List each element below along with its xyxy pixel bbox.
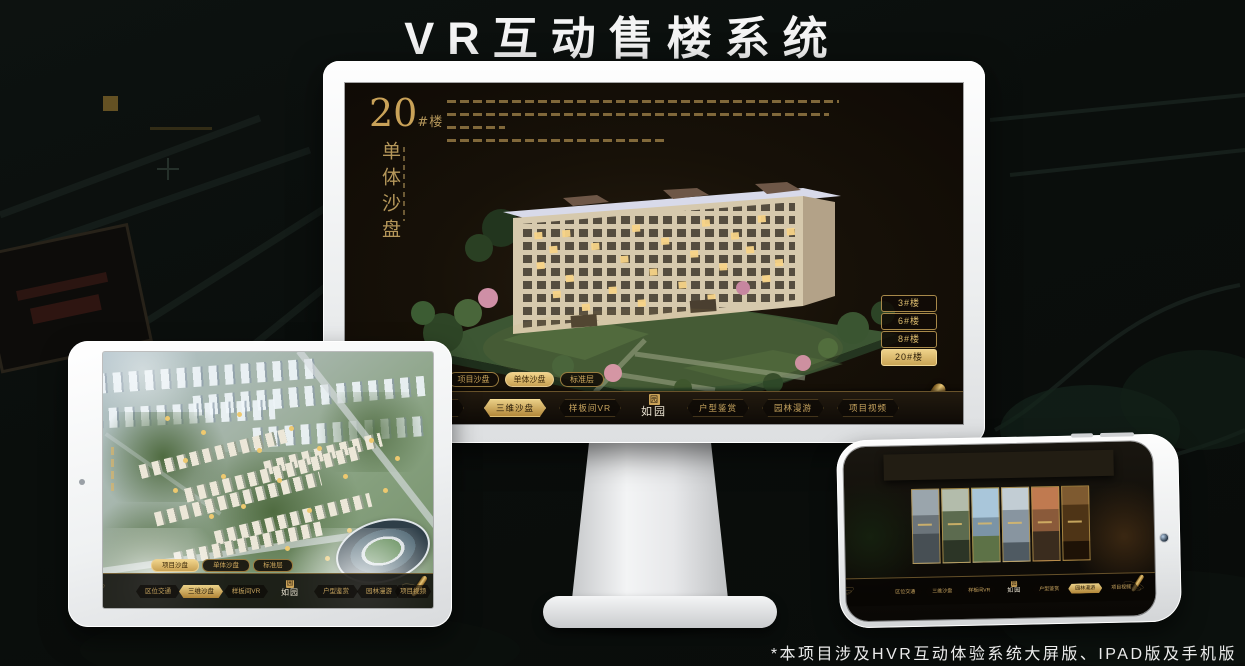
- nav-item-3d-sandbox[interactable]: 三维沙盘: [484, 399, 546, 417]
- brand-logo[interactable]: 园 如园: [632, 394, 676, 418]
- tablet-app-screen: 项目沙盘 单体沙盘 标准层 区位交通 三维沙盘 样板间VR 园 如园 户型鉴赏 …: [103, 352, 433, 608]
- nav-item-floorplan[interactable]: 户型鉴赏: [314, 585, 358, 598]
- nav-item-garden-tour[interactable]: 园林漫游: [357, 585, 401, 598]
- nav-item-floorplan[interactable]: 户型鉴赏: [687, 399, 749, 417]
- phone-device: 区位交通 三维沙盘 样板间VR 园 如园 户型鉴赏 园林漫游 项目视频: [836, 433, 1182, 628]
- gallery-panel[interactable]: [1031, 486, 1061, 562]
- nav-item-project-video[interactable]: 项目视频: [395, 585, 431, 598]
- ipad-device: 项目沙盘 单体沙盘 标准层 区位交通 三维沙盘 样板间VR 园 如园 户型鉴赏 …: [68, 341, 452, 627]
- subtab-standard-floor[interactable]: 标准层: [253, 559, 293, 572]
- phone-camera-icon: [1159, 533, 1169, 543]
- subtab-single-building[interactable]: 单体沙盘: [202, 559, 250, 572]
- nav-item-3d-sandbox[interactable]: 三维沙盘: [925, 586, 959, 597]
- phone-side-button: [1071, 433, 1093, 437]
- poster: VR互动售楼系统 20#楼 单体沙盘: [0, 0, 1245, 666]
- monitor-stand-base: [543, 596, 777, 628]
- building-number-badges: [165, 416, 170, 421]
- brand-name: 如园: [632, 405, 676, 418]
- brand-seal-icon: 园: [286, 580, 294, 588]
- brand-logo[interactable]: 园 如园: [272, 580, 308, 598]
- nav-item-model-room-vr[interactable]: 样板间VR: [559, 399, 621, 417]
- nav-item-floorplan[interactable]: 户型鉴赏: [1032, 584, 1066, 595]
- page-title: VR互动售楼系统: [0, 2, 1245, 67]
- footnote-text: *本项目涉及HVR互动体验系统大屏版、IPAD版及手机版: [771, 640, 1237, 664]
- phone-app-screen: 区位交通 三维沙盘 样板间VR 园 如园 户型鉴赏 园林漫游 项目视频: [843, 441, 1156, 621]
- nav-item-garden-tour[interactable]: 园林漫游: [762, 399, 824, 417]
- scroll-ornament-icon: [843, 579, 854, 601]
- nav-item-garden-tour[interactable]: 园林漫游: [1068, 583, 1102, 594]
- gallery-panel[interactable]: [1061, 485, 1091, 561]
- brand-seal-icon: 园: [649, 394, 660, 405]
- nav-item-project-video[interactable]: 项目视频: [1104, 582, 1138, 593]
- floor-button-3[interactable]: 3#楼: [881, 295, 937, 312]
- nav-item-location-traffic[interactable]: 区位交通: [136, 585, 180, 598]
- brand-name: 如园: [272, 588, 308, 598]
- ipad-camera-icon: [79, 479, 85, 485]
- subtab-project-sandbox[interactable]: 项目沙盘: [151, 559, 199, 572]
- nav-item-project-video[interactable]: 项目视频: [837, 399, 899, 417]
- floor-button-6[interactable]: 6#楼: [881, 313, 937, 330]
- gallery-panel[interactable]: [971, 487, 1001, 563]
- main-nav-bar: 区位交通 三维沙盘 样板间VR 园 如园 户型鉴赏 园林漫游 项目视频: [103, 573, 433, 608]
- nav-item-3d-sandbox[interactable]: 三维沙盘: [179, 585, 223, 598]
- gallery-panel[interactable]: [911, 488, 941, 564]
- building-number-title: 20#楼: [369, 93, 443, 143]
- subtab-single-building[interactable]: 单体沙盘: [505, 372, 554, 387]
- gallery-panel[interactable]: [941, 488, 971, 564]
- fog-overlay: [103, 352, 213, 412]
- nav-item-model-room-vr[interactable]: 样板间VR: [962, 585, 996, 596]
- floor-button-8[interactable]: 8#楼: [881, 331, 937, 348]
- nav-item-location-traffic[interactable]: 区位交通: [888, 587, 922, 598]
- brand-logo[interactable]: 园 如园: [1000, 581, 1028, 596]
- scroll-ornament-icon: [103, 574, 105, 600]
- monitor-stand: [572, 441, 728, 599]
- district-label-vertical: [111, 447, 114, 493]
- gallery-panel[interactable]: [1001, 487, 1031, 563]
- phone-side-button: [1100, 432, 1134, 437]
- floor-button-20[interactable]: 20#楼: [881, 349, 937, 366]
- subtab-standard-floor[interactable]: 标准层: [560, 372, 604, 387]
- brand-name: 如园: [1000, 587, 1028, 596]
- subtab-project-sandbox[interactable]: 项目沙盘: [448, 372, 499, 387]
- nav-item-model-room-vr[interactable]: 样板间VR: [224, 585, 268, 598]
